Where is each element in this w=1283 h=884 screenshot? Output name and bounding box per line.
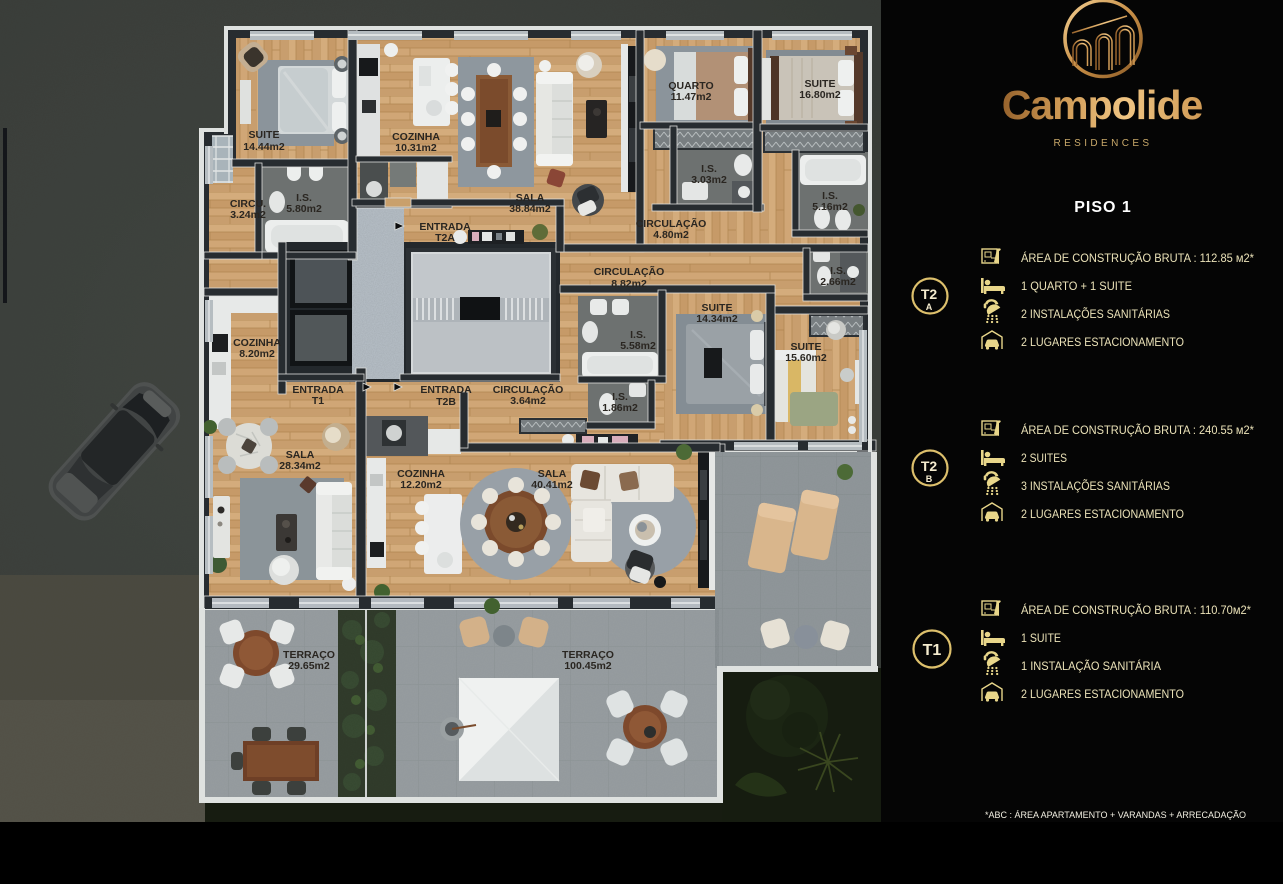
svg-text:14.34m2: 14.34m2 [696,313,738,325]
svg-text:B: B [926,474,933,484]
svg-text:1 INSTALAÇÃO SANITÁRIA: 1 INSTALAÇÃO SANITÁRIA [1021,660,1161,673]
svg-text:29.65m2: 29.65m2 [288,660,330,672]
svg-text:5.16m2: 5.16m2 [812,201,848,213]
svg-text:T1: T1 [312,395,324,407]
svg-text:5.80m2: 5.80m2 [286,203,322,215]
svg-text:2 LUGARES ESTACIONAMENTO: 2 LUGARES ESTACIONAMENTO [1021,337,1184,349]
svg-text:2 SUITES: 2 SUITES [1021,453,1067,465]
svg-text:2.66m2: 2.66m2 [820,276,856,288]
svg-text:15.60m2: 15.60m2 [785,352,827,364]
svg-text:ÁREA DE CONSTRUÇÃO BRUTA : 24: ÁREA DE CONSTRUÇÃO BRUTA : 240.55 м2* [1021,424,1254,437]
svg-text:A: A [926,302,933,312]
svg-text:1 QUARTO + 1 SUITE: 1 QUARTO + 1 SUITE [1021,281,1132,293]
svg-text:8.20m2: 8.20m2 [239,348,275,360]
svg-text:T2: T2 [921,286,938,302]
svg-text:3.24m2: 3.24m2 [230,209,266,221]
svg-text:10.31m2: 10.31m2 [395,142,437,154]
svg-text:RESIDENCES: RESIDENCES [1053,138,1152,149]
svg-text:1 SUITE: 1 SUITE [1021,633,1061,645]
svg-text:ÁREA DE CONSTRUÇÃO BRUTA : 11: ÁREA DE CONSTRUÇÃO BRUTA : 112.85 м2* [1021,252,1255,265]
svg-text:T2A: T2A [435,232,455,244]
svg-text:ENTRADA: ENTRADA [420,384,472,396]
svg-text:12.20m2: 12.20m2 [400,479,442,491]
svg-text:2 INSTALAÇÕES SANITÁRIAS: 2 INSTALAÇÕES SANITÁRIAS [1021,308,1170,321]
svg-text:8.82m2: 8.82m2 [611,278,647,290]
svg-text:2 LUGARES ESTACIONAMENTO: 2 LUGARES ESTACIONAMENTO [1021,689,1184,701]
svg-text:38.84m2: 38.84m2 [509,203,551,215]
svg-text:5.58m2: 5.58m2 [620,340,656,352]
svg-text:SUITE: SUITE [249,129,280,141]
svg-text:3.64m2: 3.64m2 [510,395,546,407]
svg-text:2 LUGARES ESTACIONAMENTO: 2 LUGARES ESTACIONAMENTO [1021,509,1184,521]
svg-text:*ABC : ÁREA APARTAMENTO + VAR: *ABC : ÁREA APARTAMENTO + VARANDAS + ARR… [985,810,1246,821]
svg-text:28.34m2: 28.34m2 [279,460,321,472]
svg-text:T1: T1 [923,642,942,659]
svg-text:11.47m2: 11.47m2 [671,91,712,103]
svg-text:CIRCULAÇÃO: CIRCULAÇÃO [594,265,665,278]
svg-text:14.44m2: 14.44m2 [243,141,285,153]
svg-text:ÁREA DE CONSTRUÇÃO BRUTA : 11: ÁREA DE CONSTRUÇÃO BRUTA : 110.70м2* [1021,604,1251,617]
svg-text:Campolide: Campolide [1002,82,1203,128]
svg-text:4.80m2: 4.80m2 [653,229,689,241]
svg-text:16.80m2: 16.80m2 [799,89,841,101]
svg-text:3.03m2: 3.03m2 [691,174,727,186]
svg-text:PISO 1: PISO 1 [1074,199,1132,216]
svg-text:T2: T2 [921,458,938,474]
svg-text:3 INSTALAÇÕES SANITÁRIAS: 3 INSTALAÇÕES SANITÁRIAS [1021,480,1170,493]
svg-text:T2B: T2B [436,396,456,408]
svg-text:1.86m2: 1.86m2 [602,402,638,414]
svg-text:40.41m2: 40.41m2 [531,479,573,491]
svg-text:100.45m2: 100.45m2 [564,660,611,672]
